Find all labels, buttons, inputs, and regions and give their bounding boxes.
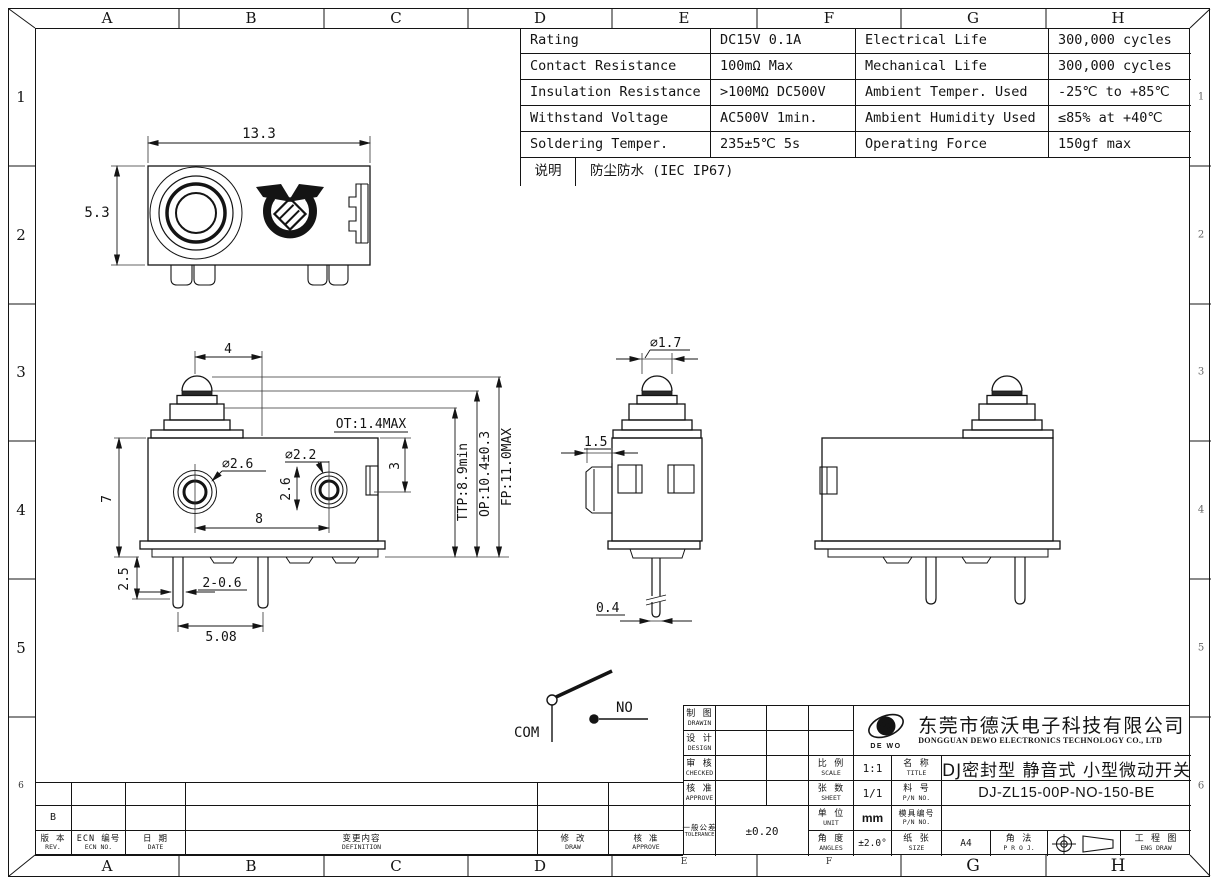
grid-col-label-top: B [245, 9, 256, 27]
revision-header-date: 日 期DATE [126, 831, 186, 856]
revision-header-ecn: ECN 编号ECN NO. [72, 831, 126, 856]
grid-row-label-left: 2 [16, 226, 26, 244]
grid-col-label-top: E [679, 9, 690, 27]
spec-value: 100mΩ Max [711, 54, 856, 80]
dewo-logo: W DE WO [860, 710, 912, 752]
spec-value: 235±5℃ 5s [711, 132, 856, 158]
angles-value: ±2.0° [854, 831, 892, 856]
svg-text:DE WO: DE WO [871, 743, 902, 750]
company-name-en: DONGGUAN DEWO ELECTRONICS TECHNOLOGY CO.… [918, 737, 1162, 746]
titleblock-checked-label: 审 核CHECKED [684, 756, 716, 781]
unit-label: 单 位UNIT [809, 806, 854, 831]
drawing-title: DJ密封型 静音式 小型微动开关 [942, 756, 1191, 781]
grid-row-label-left: 1 [16, 88, 26, 106]
spec-value: ≤85% at +40℃ [1049, 106, 1191, 132]
grid-row-label-right: 2 [1198, 230, 1204, 241]
grid-row-label-right: 6 [1198, 781, 1204, 792]
grid-row-label-right: 3 [1198, 367, 1204, 378]
grid-col-label-bottom: F [826, 857, 832, 867]
spec-value: AC500V 1min. [711, 106, 856, 132]
spec-value: DC15V 0.1A [711, 28, 856, 54]
first-angle-projection-symbol [1049, 832, 1119, 856]
angles-label: 角 度ANGLES [809, 831, 854, 856]
grid-col-label-top: A [102, 9, 113, 27]
spec-note-label: 说明 [521, 158, 576, 186]
spec-label: Contact Resistance [521, 54, 711, 80]
title-label: 名 称TITLE [892, 756, 942, 781]
grid-row-label-right: 5 [1198, 643, 1204, 654]
spec-note-row: 说明 防尘防水 (IEC IP67) [521, 158, 1191, 186]
spec-value: >100MΩ DC500V [711, 80, 856, 106]
spec-value: -25℃ to +85℃ [1049, 80, 1191, 106]
revision-header-draw: 修 改DRAW [538, 831, 609, 856]
paper-size-value: A4 [942, 831, 991, 856]
spec-note-value: 防尘防水 (IEC IP67) [576, 158, 1191, 186]
eng-draw-label: 工 程 图ENG DRAW [1121, 831, 1191, 856]
scale-value: 1:1 [854, 756, 892, 781]
spec-label: Soldering Temper. [521, 132, 711, 158]
grid-row-label-right: 1 [1198, 92, 1204, 103]
tolerance-label: 一般公差TOLERANCE [684, 806, 716, 856]
spec-label: Rating [521, 28, 711, 54]
grid-row-label-left: 4 [16, 501, 26, 519]
grid-row-label-left: 3 [16, 363, 26, 381]
grid-col-label-bottom: H [1111, 856, 1126, 876]
part-no-label: 料 号P/N NO. [892, 781, 942, 806]
company-block: W DE WO 东莞市德沃电子科技有限公司 DONGGUAN DEWO ELEC… [854, 706, 1191, 756]
spec-label: Electrical Life [856, 28, 1049, 54]
grid-row-label-left: 6 [18, 781, 24, 791]
scale-label: 比 例SCALE [809, 756, 854, 781]
tolerance-value: ±0.20 [716, 806, 809, 856]
grid-col-label-top: F [824, 9, 834, 27]
grid-col-label-top: H [1111, 9, 1124, 27]
grid-col-label-bottom: E [681, 857, 688, 867]
svg-text:W: W [878, 720, 894, 735]
spec-label: Mechanical Life [856, 54, 1049, 80]
grid-col-label-top: C [390, 9, 401, 27]
projection-symbol-cell [1048, 831, 1121, 856]
spec-value: 300,000 cycles [1049, 54, 1191, 80]
spec-value: 300,000 cycles [1049, 28, 1191, 54]
revision-header-definition: 变更内容DEFINITION [186, 831, 538, 856]
grid-col-label-bottom: D [534, 857, 546, 875]
part-number: DJ-ZL15-00P-NO-150-BE [942, 781, 1191, 806]
projection-label: 角 法P R O J. [991, 831, 1048, 856]
unit-value: mm [854, 806, 892, 831]
grid-col-label-bottom: B [245, 857, 256, 875]
sheet-label: 张 数SHEET [809, 781, 854, 806]
grid-row-label-left: 5 [16, 639, 26, 657]
spec-label: Ambient Humidity Used [856, 106, 1049, 132]
grid-col-label-bottom: C [390, 857, 401, 875]
mold-no-label: 模具编号P/N NO. [892, 806, 942, 831]
spec-label: Insulation Resistance [521, 80, 711, 106]
titleblock-drawin-label: 制 图DRAWIN [684, 706, 716, 731]
grid-col-label-bottom: A [102, 857, 113, 875]
spec-label: Withstand Voltage [521, 106, 711, 132]
spec-table: Rating DC15V 0.1A Electrical Life 300,00… [520, 28, 1190, 186]
revision-header-approve: 核 准APPROVE [609, 831, 683, 856]
company-name-zh: 东莞市德沃电子科技有限公司 [918, 716, 1185, 737]
paper-size-label: 纸 张SIZE [892, 831, 942, 856]
revision-table: B 版 本REV. ECN 编号ECN NO. 日 期DATE 变更内容DEFI… [35, 782, 683, 855]
grid-row-label-right: 4 [1198, 505, 1204, 516]
sheet-value: 1/1 [854, 781, 892, 806]
engineering-drawing-sheet: 13.3 5.3 4 OT:1.4MAX TTP:8.9min OP:10.4±… [0, 0, 1219, 884]
revision-header-rev: 版 本REV. [35, 831, 72, 856]
grid-col-label-top: G [967, 9, 979, 27]
spec-label: Operating Force [856, 132, 1049, 158]
titleblock-approve-label: 核 准APPROVE [684, 781, 716, 806]
spec-label: Ambient Temper. Used [856, 80, 1049, 106]
spec-value: 150gf max [1049, 132, 1191, 158]
title-block: 制 图DRAWIN W DE WO 东莞市德沃电子科技有限公司 DONGGUAN… [683, 705, 1190, 855]
grid-col-label-bottom: G [966, 856, 980, 876]
grid-col-label-top: D [534, 9, 546, 27]
titleblock-design-label: 设 计DESIGN [684, 731, 716, 756]
revision-value: B [50, 812, 56, 824]
mold-no-value [942, 806, 1191, 831]
